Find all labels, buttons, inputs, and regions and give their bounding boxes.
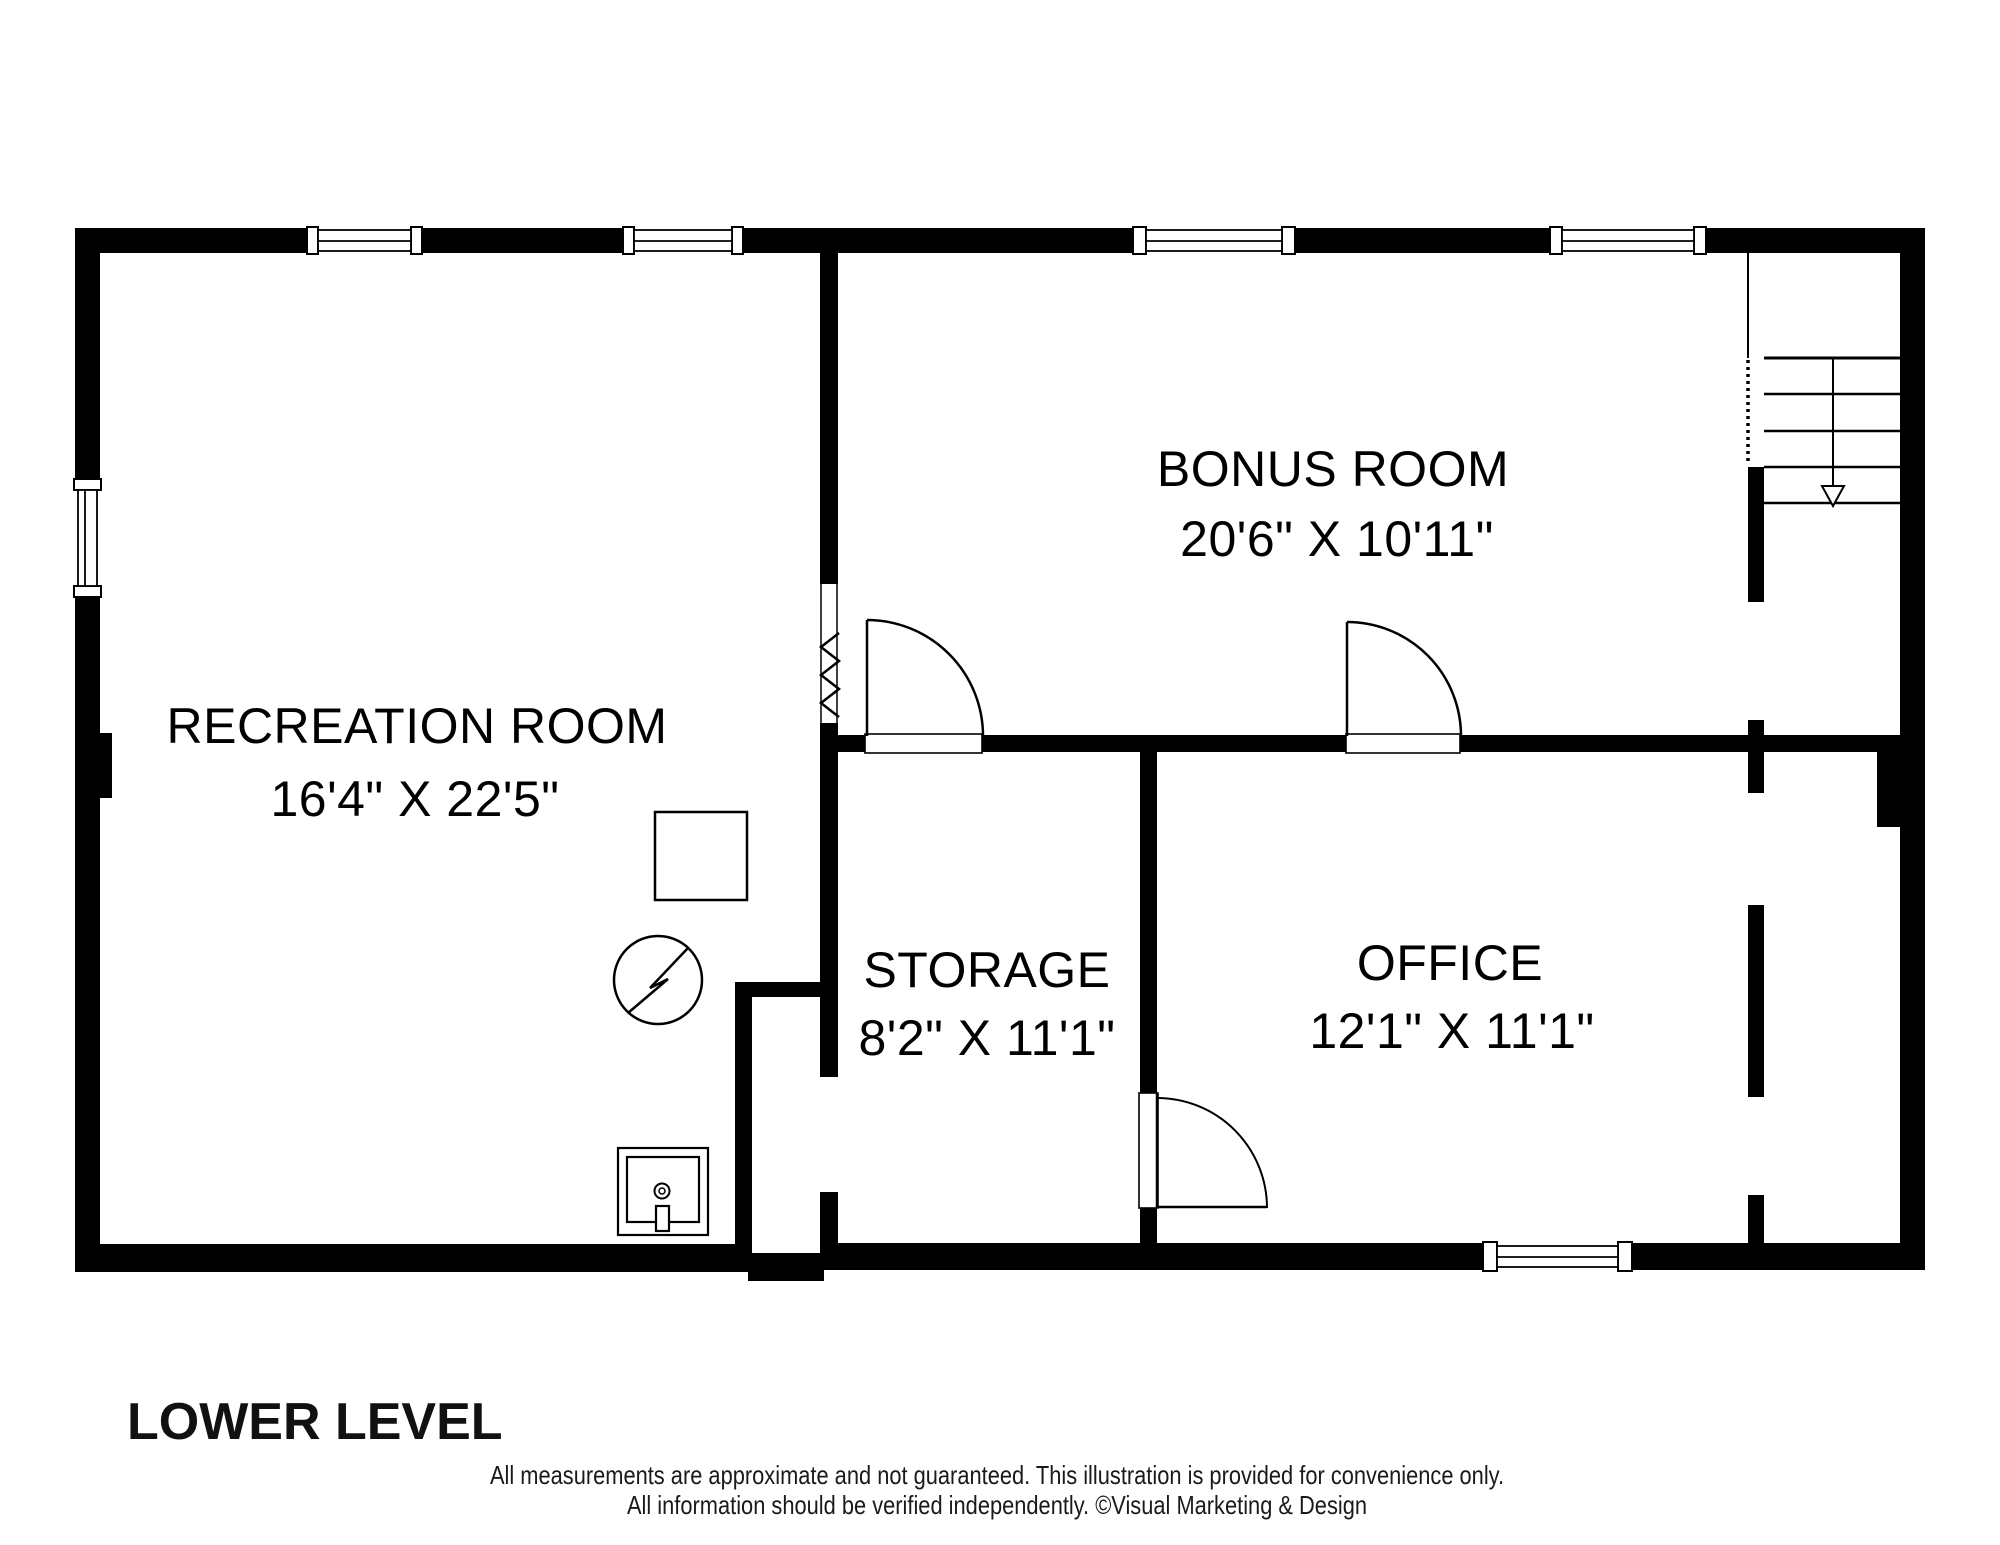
- room-label-bonus: BONUS ROOM: [1157, 440, 1509, 498]
- wall-mid-horiz-c: [1460, 735, 1902, 752]
- wall-corridor-block: [1877, 750, 1902, 827]
- fixtures: [614, 812, 747, 1235]
- staircase: [1748, 250, 1900, 506]
- wall-office-corridor-b: [1748, 720, 1764, 793]
- doors: [865, 620, 1461, 1208]
- room-dims-bonus: 20'6" X 10'11": [1180, 510, 1494, 568]
- utility-sink-icon: [618, 1148, 708, 1235]
- disclaimer-line-2: All information should be verified indep…: [627, 1490, 1367, 1521]
- wall-mid-horiz-b: [982, 735, 1346, 752]
- room-dims-storage: 8'2" X 11'1": [858, 1009, 1115, 1067]
- room-label-storage: STORAGE: [863, 941, 1110, 999]
- window-left: [74, 479, 101, 597]
- wall-storage-office-a: [1140, 752, 1157, 1093]
- wall-storage-office-b: [1140, 1208, 1157, 1245]
- window-top-4: [1550, 227, 1706, 254]
- door-bonus-left: [865, 620, 983, 753]
- wall-office-corridor-d: [1748, 1195, 1764, 1268]
- electric-meter-icon: [614, 936, 702, 1024]
- disclaimer-line-1: All measurements are approximate and not…: [490, 1460, 1504, 1491]
- room-dims-recreation: 16'4" X 22'5": [270, 770, 559, 828]
- door-storage-office: [1139, 1093, 1267, 1208]
- window-top-1: [307, 227, 422, 254]
- window-bottom: [1483, 1242, 1632, 1271]
- wall-rec-storage-b: [820, 1192, 838, 1245]
- wall-office-corridor-a: [1748, 467, 1764, 602]
- window-top-2: [623, 227, 743, 254]
- room-label-recreation: RECREATION ROOM: [166, 697, 667, 755]
- window-top-3: [1133, 227, 1295, 254]
- floor-title: LOWER LEVEL: [127, 1392, 503, 1452]
- wall-nook-cap: [735, 982, 827, 997]
- door-bonus-right: [1346, 622, 1461, 753]
- wall-rec-storage-a: [820, 752, 838, 1077]
- floor-plan-canvas: RECREATION ROOM 16'4" X 22'5" BONUS ROOM…: [0, 0, 2000, 1545]
- interior-walls: [97, 250, 1902, 1268]
- wall-nook-vertical: [735, 982, 752, 1245]
- wall-rec-bonus-upper: [820, 250, 838, 584]
- wall-bottom-left: [75, 1244, 752, 1272]
- room-label-office: OFFICE: [1357, 934, 1543, 992]
- room-dims-office: 12'1" X 11'1": [1309, 1002, 1594, 1060]
- wall-right: [1900, 228, 1925, 1270]
- wall-mid-horiz-a: [820, 735, 865, 752]
- wall-left: [75, 228, 100, 1272]
- wall-bottom-nook: [748, 1253, 824, 1281]
- rec-bonus-opening: [821, 584, 839, 723]
- wall-office-corridor-c: [1748, 905, 1764, 1097]
- wall-left-pier: [97, 733, 112, 798]
- furnace-square-icon: [655, 812, 747, 900]
